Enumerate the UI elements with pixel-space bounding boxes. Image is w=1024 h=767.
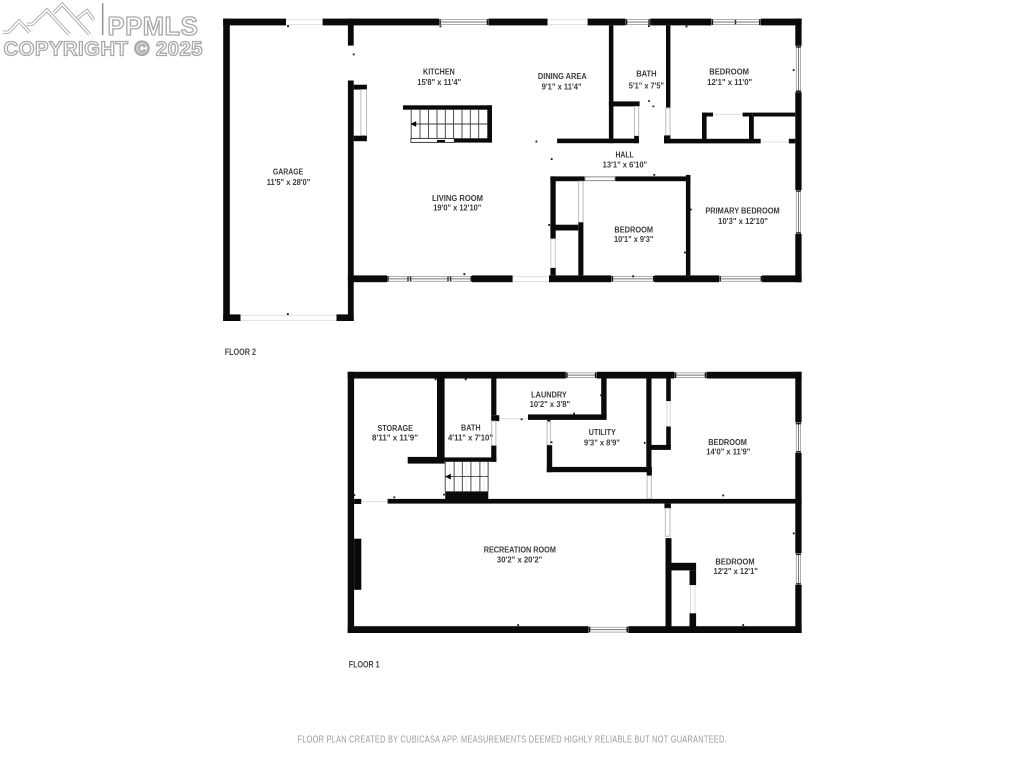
svg-text:14'0" x 11'9": 14'0" x 11'9" [706,446,750,456]
svg-text:FLOOR 1: FLOOR 1 [349,660,380,670]
svg-text:8'11" x 11'9": 8'11" x 11'9" [372,433,418,443]
svg-text:30'2" x 20'2": 30'2" x 20'2" [497,555,542,565]
svg-text:PPMLS: PPMLS [108,13,199,41]
svg-text:KITCHEN: KITCHEN [423,66,455,76]
svg-text:PRIMARY BEDROOM: PRIMARY BEDROOM [705,205,779,215]
svg-text:10'3" x 12'10": 10'3" x 12'10" [718,216,768,226]
svg-text:13'1" x 6'10": 13'1" x 6'10" [603,159,648,169]
svg-text:COPYRIGHT © 2025: COPYRIGHT © 2025 [4,39,203,61]
svg-text:11'5" x 28'0": 11'5" x 28'0" [267,177,311,187]
svg-text:12'1" x 11'0": 12'1" x 11'0" [707,77,752,87]
svg-text:BEDROOM: BEDROOM [708,437,747,447]
svg-text:4'11" x 7'10": 4'11" x 7'10" [448,433,493,443]
svg-text:UTILITY: UTILITY [589,427,616,437]
svg-text:BEDROOM: BEDROOM [715,556,754,566]
svg-text:10'2" x 3'8": 10'2" x 3'8" [530,399,571,409]
svg-text:LAUNDRY: LAUNDRY [531,389,567,399]
svg-text:BATH: BATH [461,423,481,433]
svg-text:BEDROOM: BEDROOM [709,66,749,76]
svg-text:RECREATION ROOM: RECREATION ROOM [484,544,556,554]
svg-text:9'1" x 11'4": 9'1" x 11'4" [542,82,582,92]
svg-text:BATH: BATH [636,69,656,79]
svg-text:DINING AREA: DINING AREA [538,71,587,81]
svg-text:5'1" x 7'5": 5'1" x 7'5" [629,80,664,90]
svg-text:9'3" x 8'9": 9'3" x 8'9" [584,437,620,447]
svg-text:15'8" x 11'4": 15'8" x 11'4" [417,77,461,87]
svg-text:GARAGE: GARAGE [273,166,304,176]
svg-text:10'1" x 9'3": 10'1" x 9'3" [614,234,653,244]
svg-text:19'0" x 12'10": 19'0" x 12'10" [433,203,481,213]
svg-text:LIVING ROOM: LIVING ROOM [432,193,483,203]
svg-text:FLOOR PLAN CREATED BY CUBICASA: FLOOR PLAN CREATED BY CUBICASA APP. MEAS… [298,735,727,746]
svg-text:BEDROOM: BEDROOM [614,224,653,234]
svg-text:FLOOR 2: FLOOR 2 [225,347,256,357]
svg-text:STORAGE: STORAGE [377,423,413,433]
svg-text:HALL: HALL [615,150,633,160]
svg-text:12'2" x 12'1": 12'2" x 12'1" [714,566,758,576]
